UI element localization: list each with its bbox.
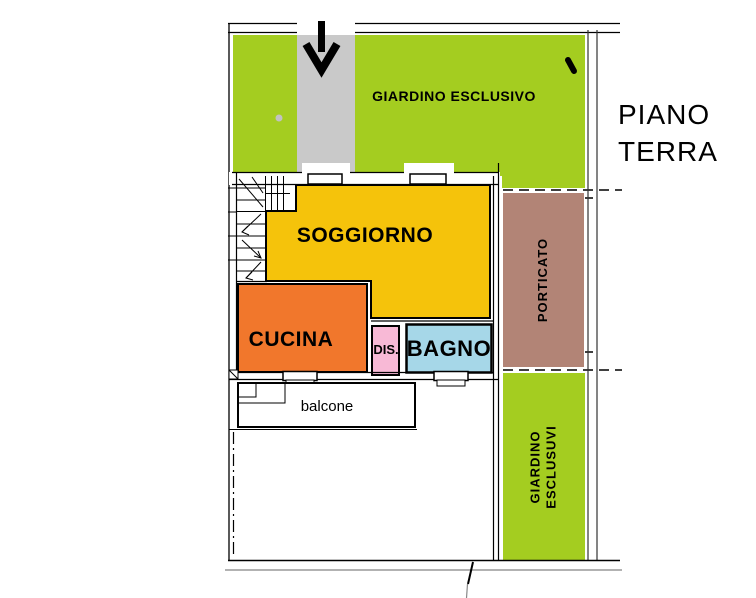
floor-title-line1: PIANO — [618, 96, 718, 133]
right-border-lines — [588, 30, 597, 561]
cucina-label: CUCINA — [230, 328, 352, 352]
window-sill — [404, 163, 454, 175]
bagno-label: BAGNO — [400, 336, 498, 362]
floor-title: PIANO TERRA — [618, 96, 718, 170]
window-icon — [308, 174, 342, 184]
garden-right-label-line2: ESCLUSUVI — [544, 425, 560, 508]
floor-title-line2: TERRA — [618, 133, 718, 170]
porticato-label-box: PORTICATO — [503, 193, 584, 367]
floor-plan-canvas: { "title": { "line1": "PIANO", "line2": … — [0, 0, 756, 598]
garden-top-label: GIARDINO ESCLUSIVO — [358, 88, 550, 104]
garden-top-right-extension — [502, 176, 585, 188]
survey-tick-icon — [468, 562, 473, 584]
window-icon — [410, 174, 446, 184]
garden-right-label: GIARDINO ESCLUSUVI — [528, 425, 560, 508]
window-icon — [283, 372, 317, 381]
garden-top-area — [233, 35, 585, 176]
garden-right-label-line1: GIARDINO — [528, 425, 544, 508]
garden-dot — [276, 115, 283, 122]
window-sill — [437, 380, 465, 386]
bottom-boundary — [225, 561, 622, 598]
window-icon — [434, 372, 468, 381]
soggiorno-label: SOGGIORNO — [294, 224, 436, 248]
porticato-label: PORTICATO — [536, 238, 552, 322]
window-sill — [302, 163, 350, 175]
border-ticks — [585, 198, 593, 352]
balcone-label: balcone — [276, 398, 378, 415]
garden-right-label-box: GIARDINO ESCLUSUVI — [503, 373, 585, 560]
